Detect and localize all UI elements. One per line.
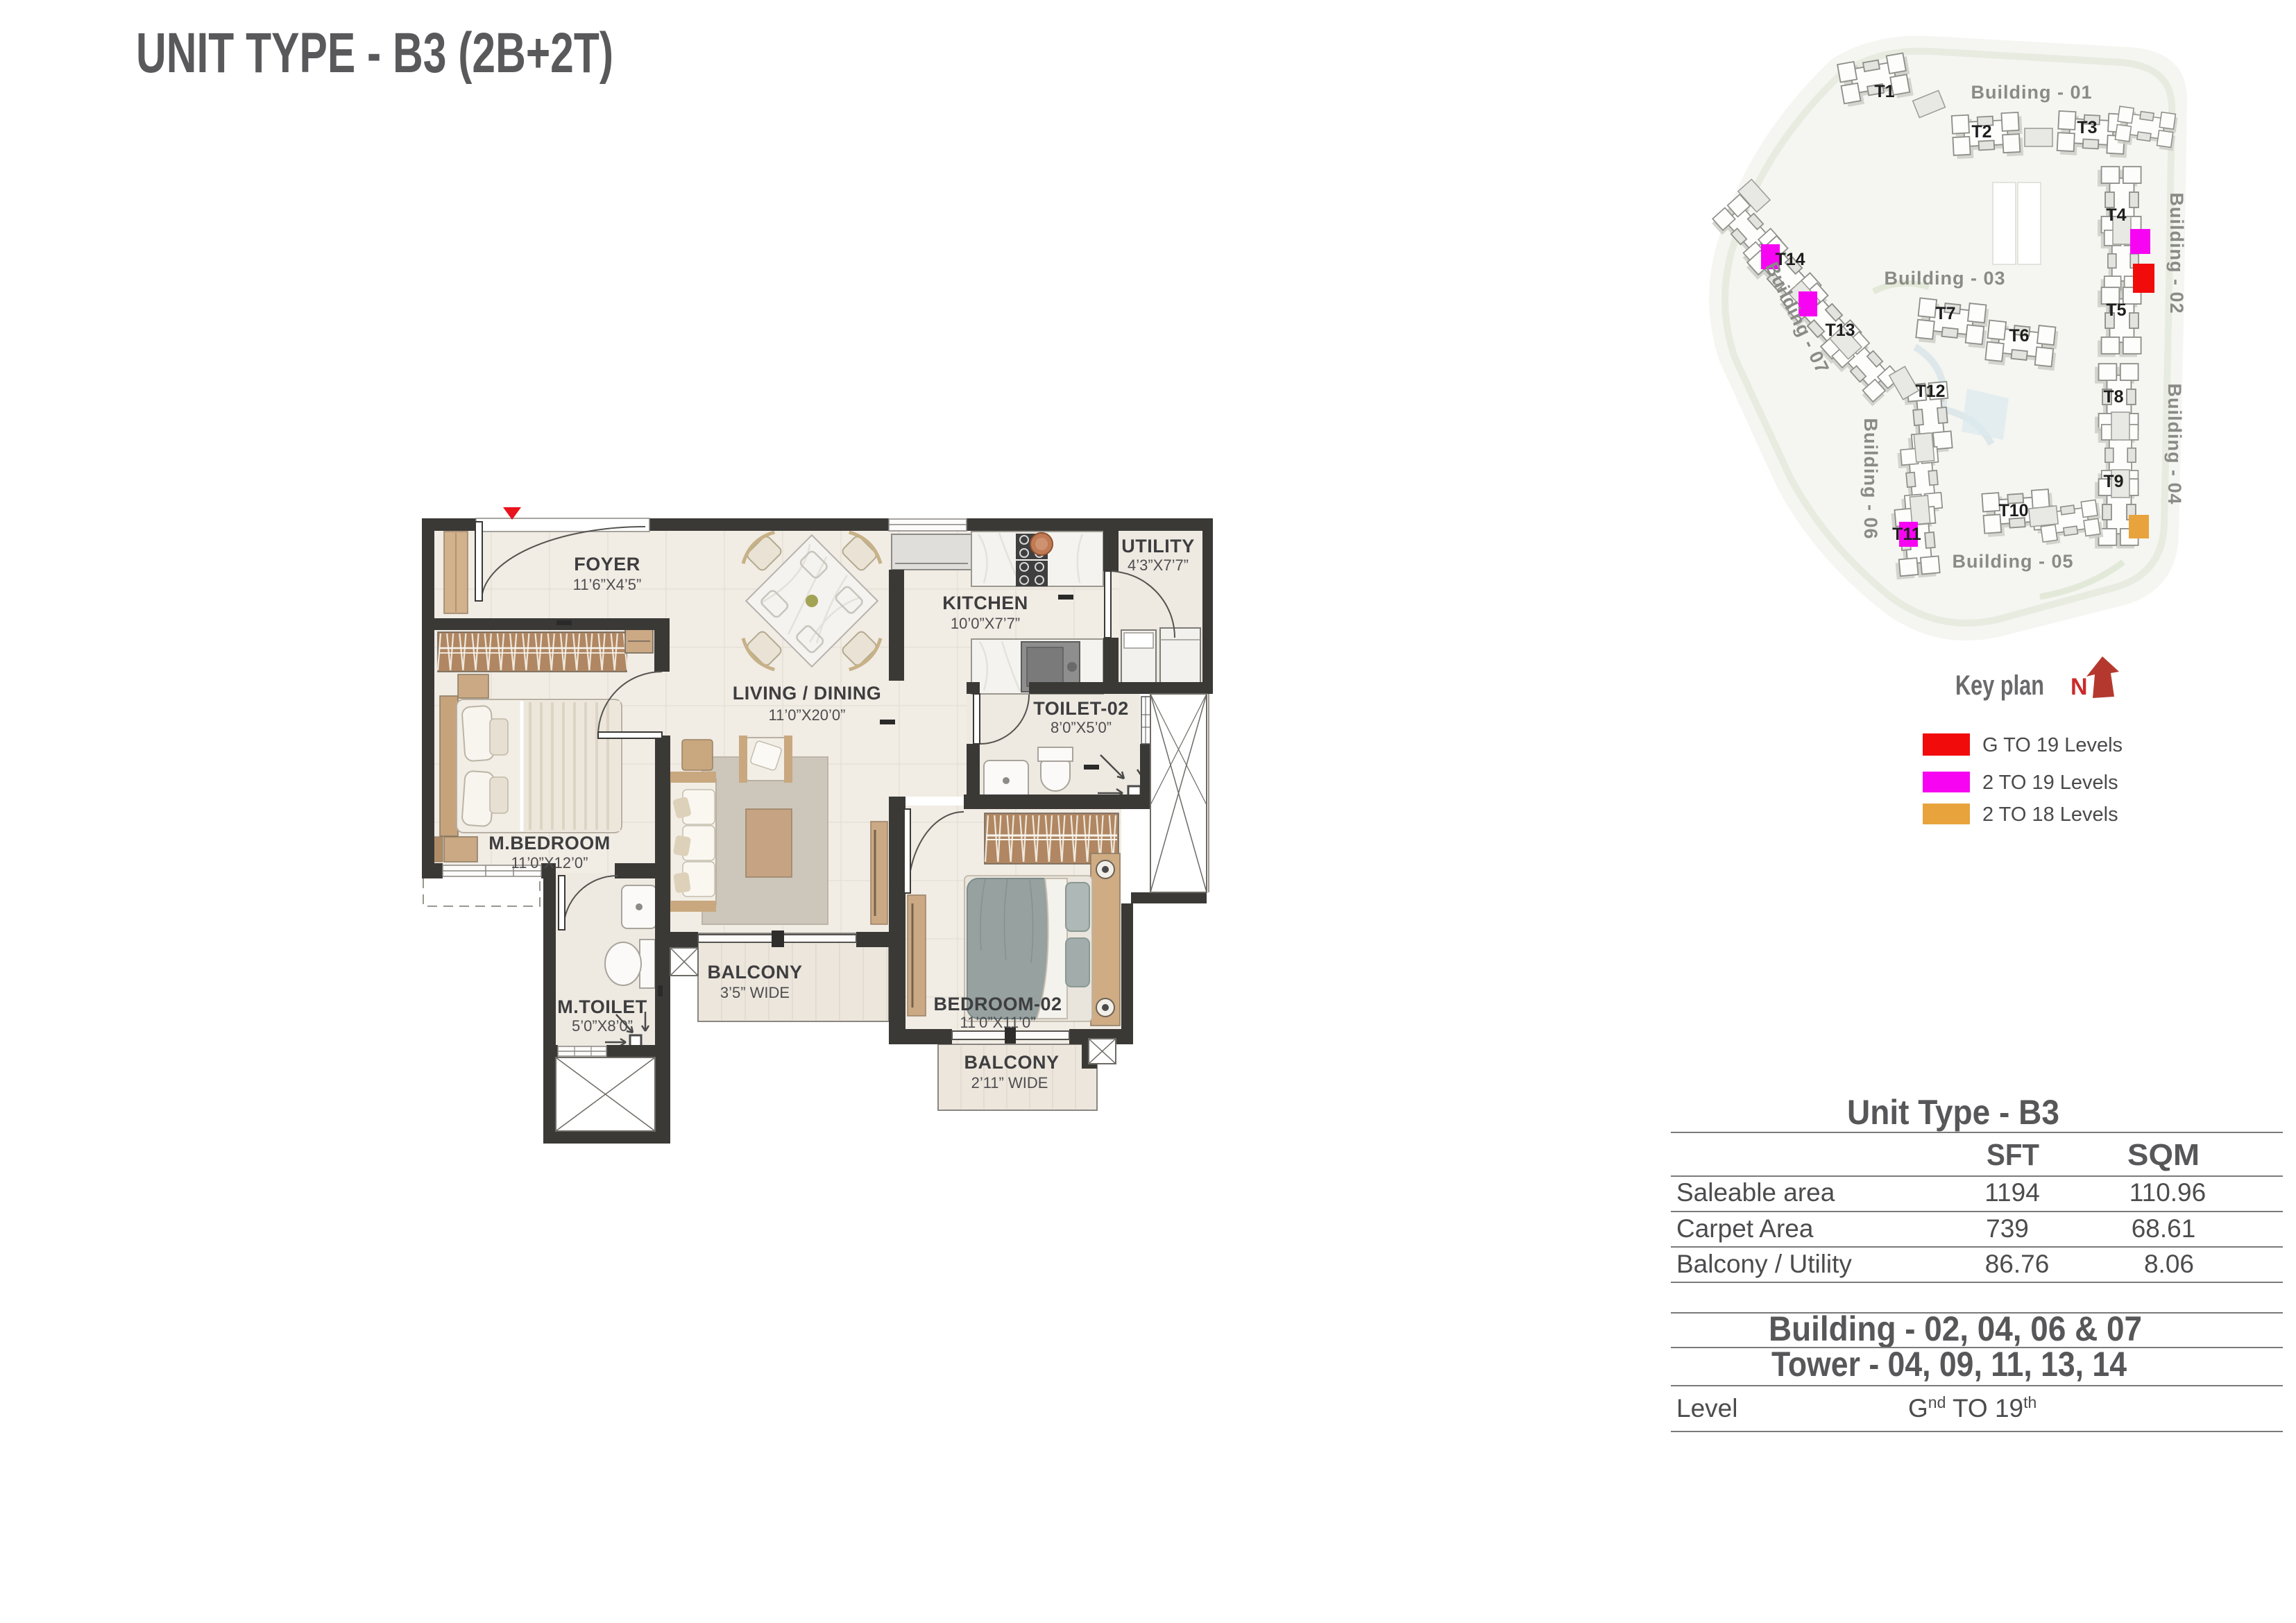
svg-text:LIVING / DINING: LIVING / DINING <box>733 683 882 704</box>
svg-text:KITCHEN: KITCHEN <box>942 593 1028 613</box>
svg-text:T7: T7 <box>1935 304 1955 323</box>
svg-text:739: 739 <box>1986 1214 2029 1243</box>
svg-text:T12: T12 <box>1915 382 1945 401</box>
svg-text:Level: Level <box>1676 1394 1737 1422</box>
svg-text:UTILITY: UTILITY <box>1121 536 1195 556</box>
svg-text:Building - 02, 04, 06 & 07: Building - 02, 04, 06 & 07 <box>1769 1309 2142 1348</box>
svg-text:TOILET-02: TOILET-02 <box>1033 698 1129 719</box>
svg-text:Saleable area: Saleable area <box>1676 1178 1835 1207</box>
svg-text:T8: T8 <box>2103 387 2123 407</box>
svg-text:M.BEDROOM: M.BEDROOM <box>488 833 611 853</box>
svg-text:Tower - 04, 09, 11, 13, 14: Tower - 04, 09, 11, 13, 14 <box>1771 1345 2127 1384</box>
svg-text:FOYER: FOYER <box>574 554 640 575</box>
svg-text:T2: T2 <box>1971 122 1991 142</box>
svg-text:10’0”X7’7”: 10’0”X7’7” <box>951 615 1020 632</box>
svg-text:86.76: 86.76 <box>1985 1250 2050 1278</box>
svg-text:T1: T1 <box>1874 82 1894 101</box>
svg-text:Building - 01: Building - 01 <box>1971 82 2093 103</box>
svg-text:11’0”X11’0”: 11’0”X11’0” <box>960 1014 1035 1031</box>
svg-text:1194: 1194 <box>1984 1178 2040 1207</box>
svg-text:UNIT TYPE - B3 (2B+2T): UNIT TYPE - B3 (2B+2T) <box>136 22 613 85</box>
svg-text:Building - 06: Building - 06 <box>1860 418 1881 540</box>
svg-text:BALCONY: BALCONY <box>708 962 803 983</box>
svg-text:Building - 03: Building - 03 <box>1885 268 2006 289</box>
svg-text:SQM: SQM <box>2127 1138 2200 1172</box>
svg-text:T6: T6 <box>2009 326 2029 346</box>
svg-text:2’11” WIDE: 2’11” WIDE <box>971 1074 1048 1091</box>
svg-text:110.96: 110.96 <box>2129 1178 2206 1207</box>
svg-text:Carpet Area: Carpet Area <box>1676 1214 1814 1243</box>
svg-text:T9: T9 <box>2103 472 2123 491</box>
svg-text:11’0”X12’0”: 11’0”X12’0” <box>511 854 588 872</box>
svg-text:68.61: 68.61 <box>2132 1214 2196 1243</box>
svg-text:M.TOILET: M.TOILET <box>557 996 647 1017</box>
svg-text:3’5” WIDE: 3’5” WIDE <box>720 984 790 1001</box>
svg-text:4’3”X7’7”: 4’3”X7’7” <box>1128 556 1189 574</box>
svg-text:Building - 05: Building - 05 <box>1953 551 2074 572</box>
svg-text:BEDROOM-02: BEDROOM-02 <box>933 994 1062 1014</box>
svg-text:Building - 04: Building - 04 <box>2164 384 2185 505</box>
svg-text:11’0”X20’0”: 11’0”X20’0” <box>769 706 846 724</box>
svg-text:T4: T4 <box>2106 205 2126 225</box>
svg-text:Unit Type - B3: Unit Type - B3 <box>1847 1093 2059 1132</box>
svg-text:Key plan: Key plan <box>1955 670 2044 701</box>
svg-text:Gnd TO 19th: Gnd TO 19th <box>1908 1393 2036 1422</box>
svg-text:BALCONY: BALCONY <box>964 1052 1060 1073</box>
svg-text:11’6”X4’5”: 11’6”X4’5” <box>573 576 642 593</box>
svg-text:T3: T3 <box>2077 118 2097 137</box>
svg-text:T10: T10 <box>1998 501 2028 520</box>
svg-text:G TO 19 Levels: G TO 19 Levels <box>1982 734 2123 756</box>
svg-text:T13: T13 <box>1825 321 1855 340</box>
svg-text:Building - 02: Building - 02 <box>2166 193 2187 314</box>
svg-text:T5: T5 <box>2106 300 2126 320</box>
svg-text:Balcony / Utility: Balcony / Utility <box>1676 1250 1852 1278</box>
svg-text:8.06: 8.06 <box>2144 1250 2194 1278</box>
svg-text:2 TO 18 Levels: 2 TO 18 Levels <box>1982 804 2118 826</box>
svg-text:8’0”X5’0”: 8’0”X5’0” <box>1051 719 1112 736</box>
svg-text:T11: T11 <box>1892 525 1921 544</box>
svg-text:5’0”X8’0”: 5’0”X8’0” <box>572 1017 633 1035</box>
svg-text:SFT: SFT <box>1987 1138 2039 1172</box>
svg-text:2 TO 19 Levels: 2 TO 19 Levels <box>1982 772 2118 794</box>
svg-text:N: N <box>2070 674 2088 700</box>
